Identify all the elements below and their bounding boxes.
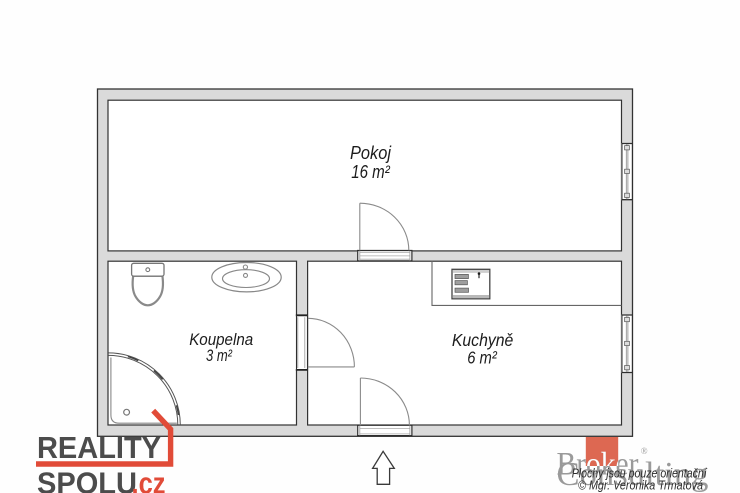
svg-text:3 m²: 3 m²: [206, 346, 233, 365]
svg-text:REALITY: REALITY: [37, 430, 161, 465]
svg-text:®: ®: [641, 446, 648, 456]
svg-text:SPOLU: SPOLU: [37, 465, 137, 493]
svg-text:© Mgr. Veronika Trmatová: © Mgr. Veronika Trmatová: [578, 477, 703, 492]
svg-text:.cz: .cz: [132, 465, 166, 493]
svg-text:6 m²: 6 m²: [467, 348, 497, 368]
svg-text:Pokoj: Pokoj: [350, 142, 392, 163]
svg-text:16 m²: 16 m²: [351, 162, 390, 182]
